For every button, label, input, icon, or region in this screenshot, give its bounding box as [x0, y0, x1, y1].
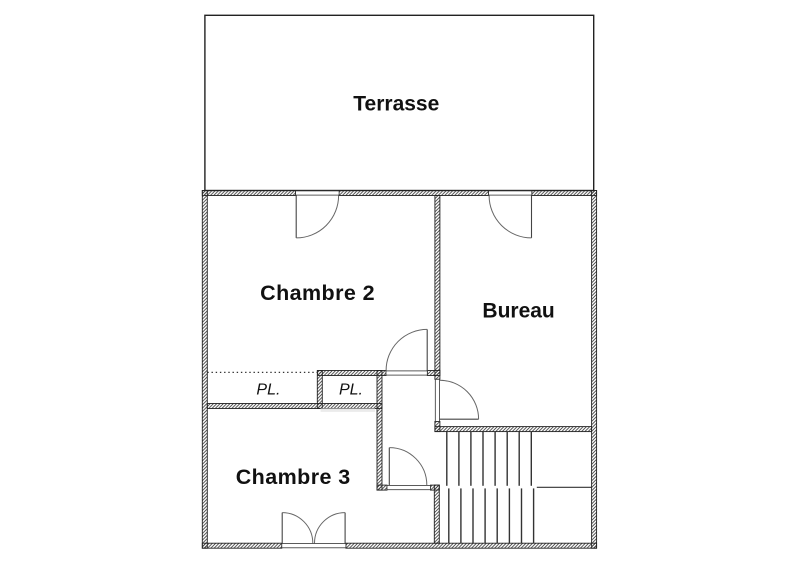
svg-text:PL.: PL. — [339, 381, 363, 398]
svg-text:PL.: PL. — [256, 381, 280, 398]
svg-text:Chambre 2: Chambre 2 — [260, 281, 375, 305]
svg-text:Terrasse: Terrasse — [353, 93, 439, 116]
svg-text:Chambre 3: Chambre 3 — [236, 465, 351, 489]
svg-text:Bureau: Bureau — [482, 300, 554, 323]
